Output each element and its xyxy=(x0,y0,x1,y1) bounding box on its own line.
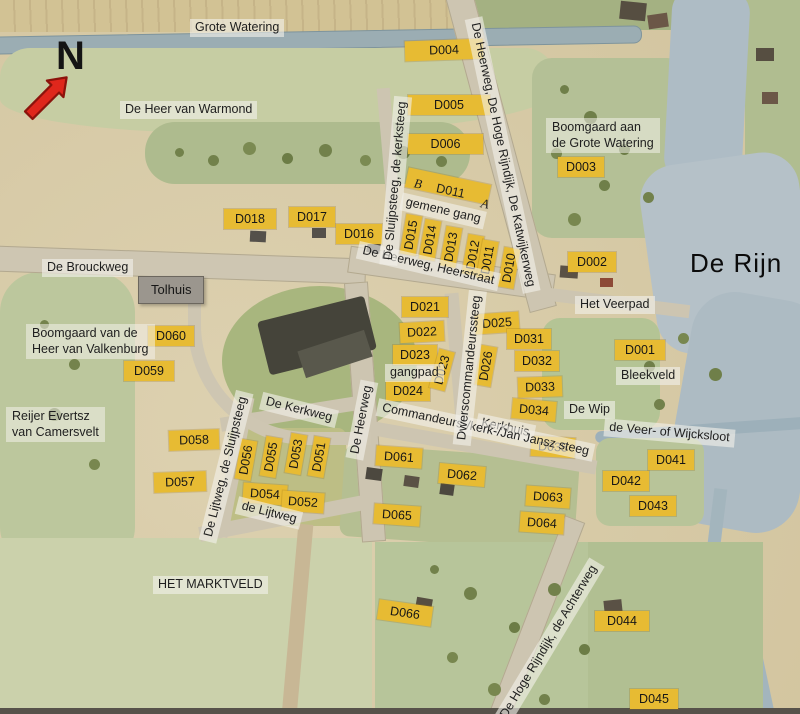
plot-label-d065: D065 xyxy=(373,503,420,526)
plot-label-d034: D034 xyxy=(511,398,557,422)
compass-north-letter: N xyxy=(56,36,85,76)
north-arrow-icon xyxy=(18,72,72,126)
plot-label-d045: D045 xyxy=(630,689,678,709)
plot-label-d023: D023 xyxy=(393,345,437,365)
plot-label-d064: D064 xyxy=(519,511,564,534)
map-building xyxy=(619,1,647,22)
map-building xyxy=(762,92,778,104)
map-label-de-brouckweg: De Brouckweg xyxy=(42,259,133,277)
plot-label-d032: D032 xyxy=(515,351,559,371)
plot-label-d033: D033 xyxy=(518,376,563,398)
map-field-marktveld xyxy=(0,538,372,714)
map-label-tolhuis: Tolhuis xyxy=(138,276,204,304)
plot-label-d060: D060 xyxy=(148,326,194,346)
map-trees-right-orchard xyxy=(560,85,569,94)
map-building xyxy=(365,467,383,481)
compass: N xyxy=(18,36,85,126)
map-building xyxy=(439,483,454,496)
plot-label-d018: D018 xyxy=(224,209,276,229)
map-building xyxy=(312,228,326,238)
map-trees-orchard xyxy=(175,148,184,157)
map-bottom-edge xyxy=(0,708,800,714)
plot-label-d003: D003 xyxy=(558,157,604,177)
plot-label-d058: D058 xyxy=(169,429,220,451)
plot-label-d024: D024 xyxy=(386,381,430,401)
map-label-het-marktveld: HET MARKTVELD xyxy=(153,576,268,594)
plot-label-d022: D022 xyxy=(400,321,445,343)
map-label-de-rijn: De Rijn xyxy=(690,247,782,280)
plot-label-d057: D057 xyxy=(154,471,207,493)
map-label-a: A xyxy=(479,195,490,213)
plot-label-d021: D021 xyxy=(402,297,448,317)
map-label-bleekveld: Bleekveld xyxy=(616,367,680,385)
plot-label-d063: D063 xyxy=(525,485,570,508)
plot-label-d001: D001 xyxy=(615,340,665,360)
map-building xyxy=(756,48,774,61)
map-label-boomgaard-aan-de-grote-watering: Boomgaard aan de Grote Watering xyxy=(546,118,660,153)
plot-label-d005: D005 xyxy=(408,95,490,115)
plot-label-d041: D041 xyxy=(648,450,694,470)
map-label-boomgaard-van-de-heer-van-valkenburg: Boomgaard van de Heer van Valkenburg xyxy=(26,324,155,359)
plot-label-d062: D062 xyxy=(438,463,486,487)
plot-label-d042: D042 xyxy=(603,471,649,491)
historical-map-canvas: N D004D005D006D003D018D017D016D002D001D0… xyxy=(0,0,800,714)
plot-label-d002: D002 xyxy=(568,252,616,272)
map-building xyxy=(250,231,267,243)
plot-label-d017: D017 xyxy=(289,207,335,227)
plot-label-d044: D044 xyxy=(595,611,649,631)
map-label-reijer-evertsz-van-camersvelt: Reijer Evertsz van Camersvelt xyxy=(6,407,105,442)
map-label-de-heer-van-warmond: De Heer van Warmond xyxy=(120,101,257,119)
map-building xyxy=(647,13,669,30)
plot-label-d031: D031 xyxy=(507,329,551,349)
map-label-grote-watering: Grote Watering xyxy=(190,19,284,37)
map-building xyxy=(600,278,613,287)
plot-label-d006: D006 xyxy=(408,134,483,154)
map-label-de-wip: De Wip xyxy=(564,401,615,419)
map-label-gangpad: gangpad xyxy=(385,364,444,382)
map-building xyxy=(403,475,419,488)
map-trees-bottom xyxy=(430,565,439,574)
plot-label-d043: D043 xyxy=(630,496,676,516)
plot-label-d059: D059 xyxy=(124,361,174,381)
plot-label-d015-v: D015 xyxy=(400,214,423,256)
map-label-het-veerpad: Het Veerpad xyxy=(575,296,655,314)
plot-label-d061: D061 xyxy=(375,445,422,468)
map-field-bottom-center xyxy=(375,542,610,714)
